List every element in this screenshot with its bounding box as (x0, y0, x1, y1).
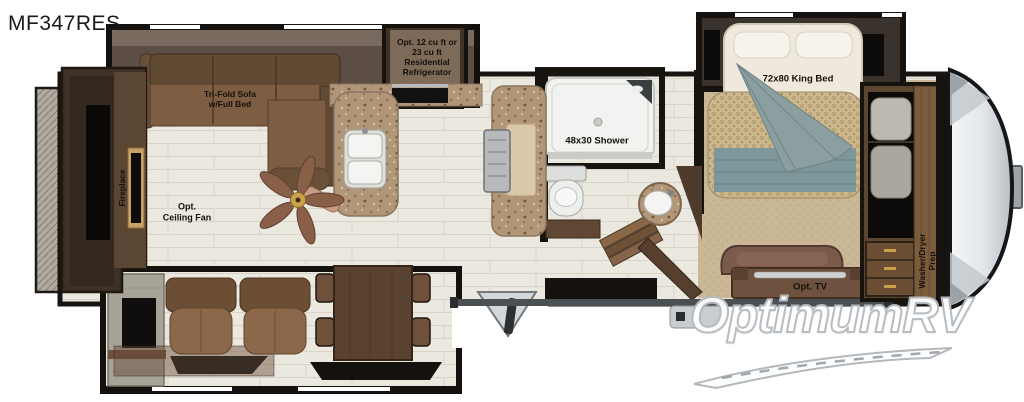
king-bed-label: 72x80 King Bed (763, 73, 834, 84)
model-number: MF347RES (8, 12, 121, 36)
kitchen-sink (344, 128, 386, 188)
tv-slot (86, 105, 110, 240)
dining-table (316, 266, 430, 360)
dining-chair (316, 318, 334, 346)
theater-seat (240, 278, 310, 354)
entertainment-center (62, 68, 146, 292)
galley-counter (484, 86, 546, 236)
watermark-road (694, 348, 952, 388)
rv-floorplan-stage: MF347RES (0, 0, 1024, 402)
king-bed (708, 24, 862, 198)
hanging-clothes (871, 98, 911, 140)
front-cap (950, 70, 1012, 308)
hanging-clothes (871, 146, 911, 198)
cooktop (392, 88, 448, 103)
floor-mat (310, 362, 442, 380)
dining-chair (412, 318, 430, 346)
dining-chair (316, 274, 334, 302)
bedroom-window (704, 30, 720, 80)
refrigerator-label: Opt. 12 cu ft or 23 cu ft Residential Re… (397, 37, 457, 77)
wheel-well (545, 278, 657, 302)
platform-latch (676, 312, 685, 321)
kitchen-island (334, 92, 398, 216)
theater-seat (166, 278, 236, 354)
bottom-slideout (100, 266, 462, 394)
sofa-label: Tri-Fold Sofa w/Full Bed (204, 89, 256, 109)
shower-label: 48x30 Shower (565, 135, 628, 146)
watermark-logo: OptimumRV (690, 292, 970, 340)
dining-chair (412, 274, 430, 302)
fireplace-label: Fireplace (117, 169, 127, 206)
fireplace-insert (128, 148, 144, 228)
washer-dryer-label: Washer/Dryer Prep (917, 234, 937, 289)
pillow (796, 32, 852, 58)
ceiling-fan-label: Opt. Ceiling Fan (163, 201, 212, 222)
pillow (734, 32, 790, 58)
bath-bench (546, 220, 600, 238)
shower (546, 78, 654, 159)
bedroom-window (862, 34, 884, 76)
